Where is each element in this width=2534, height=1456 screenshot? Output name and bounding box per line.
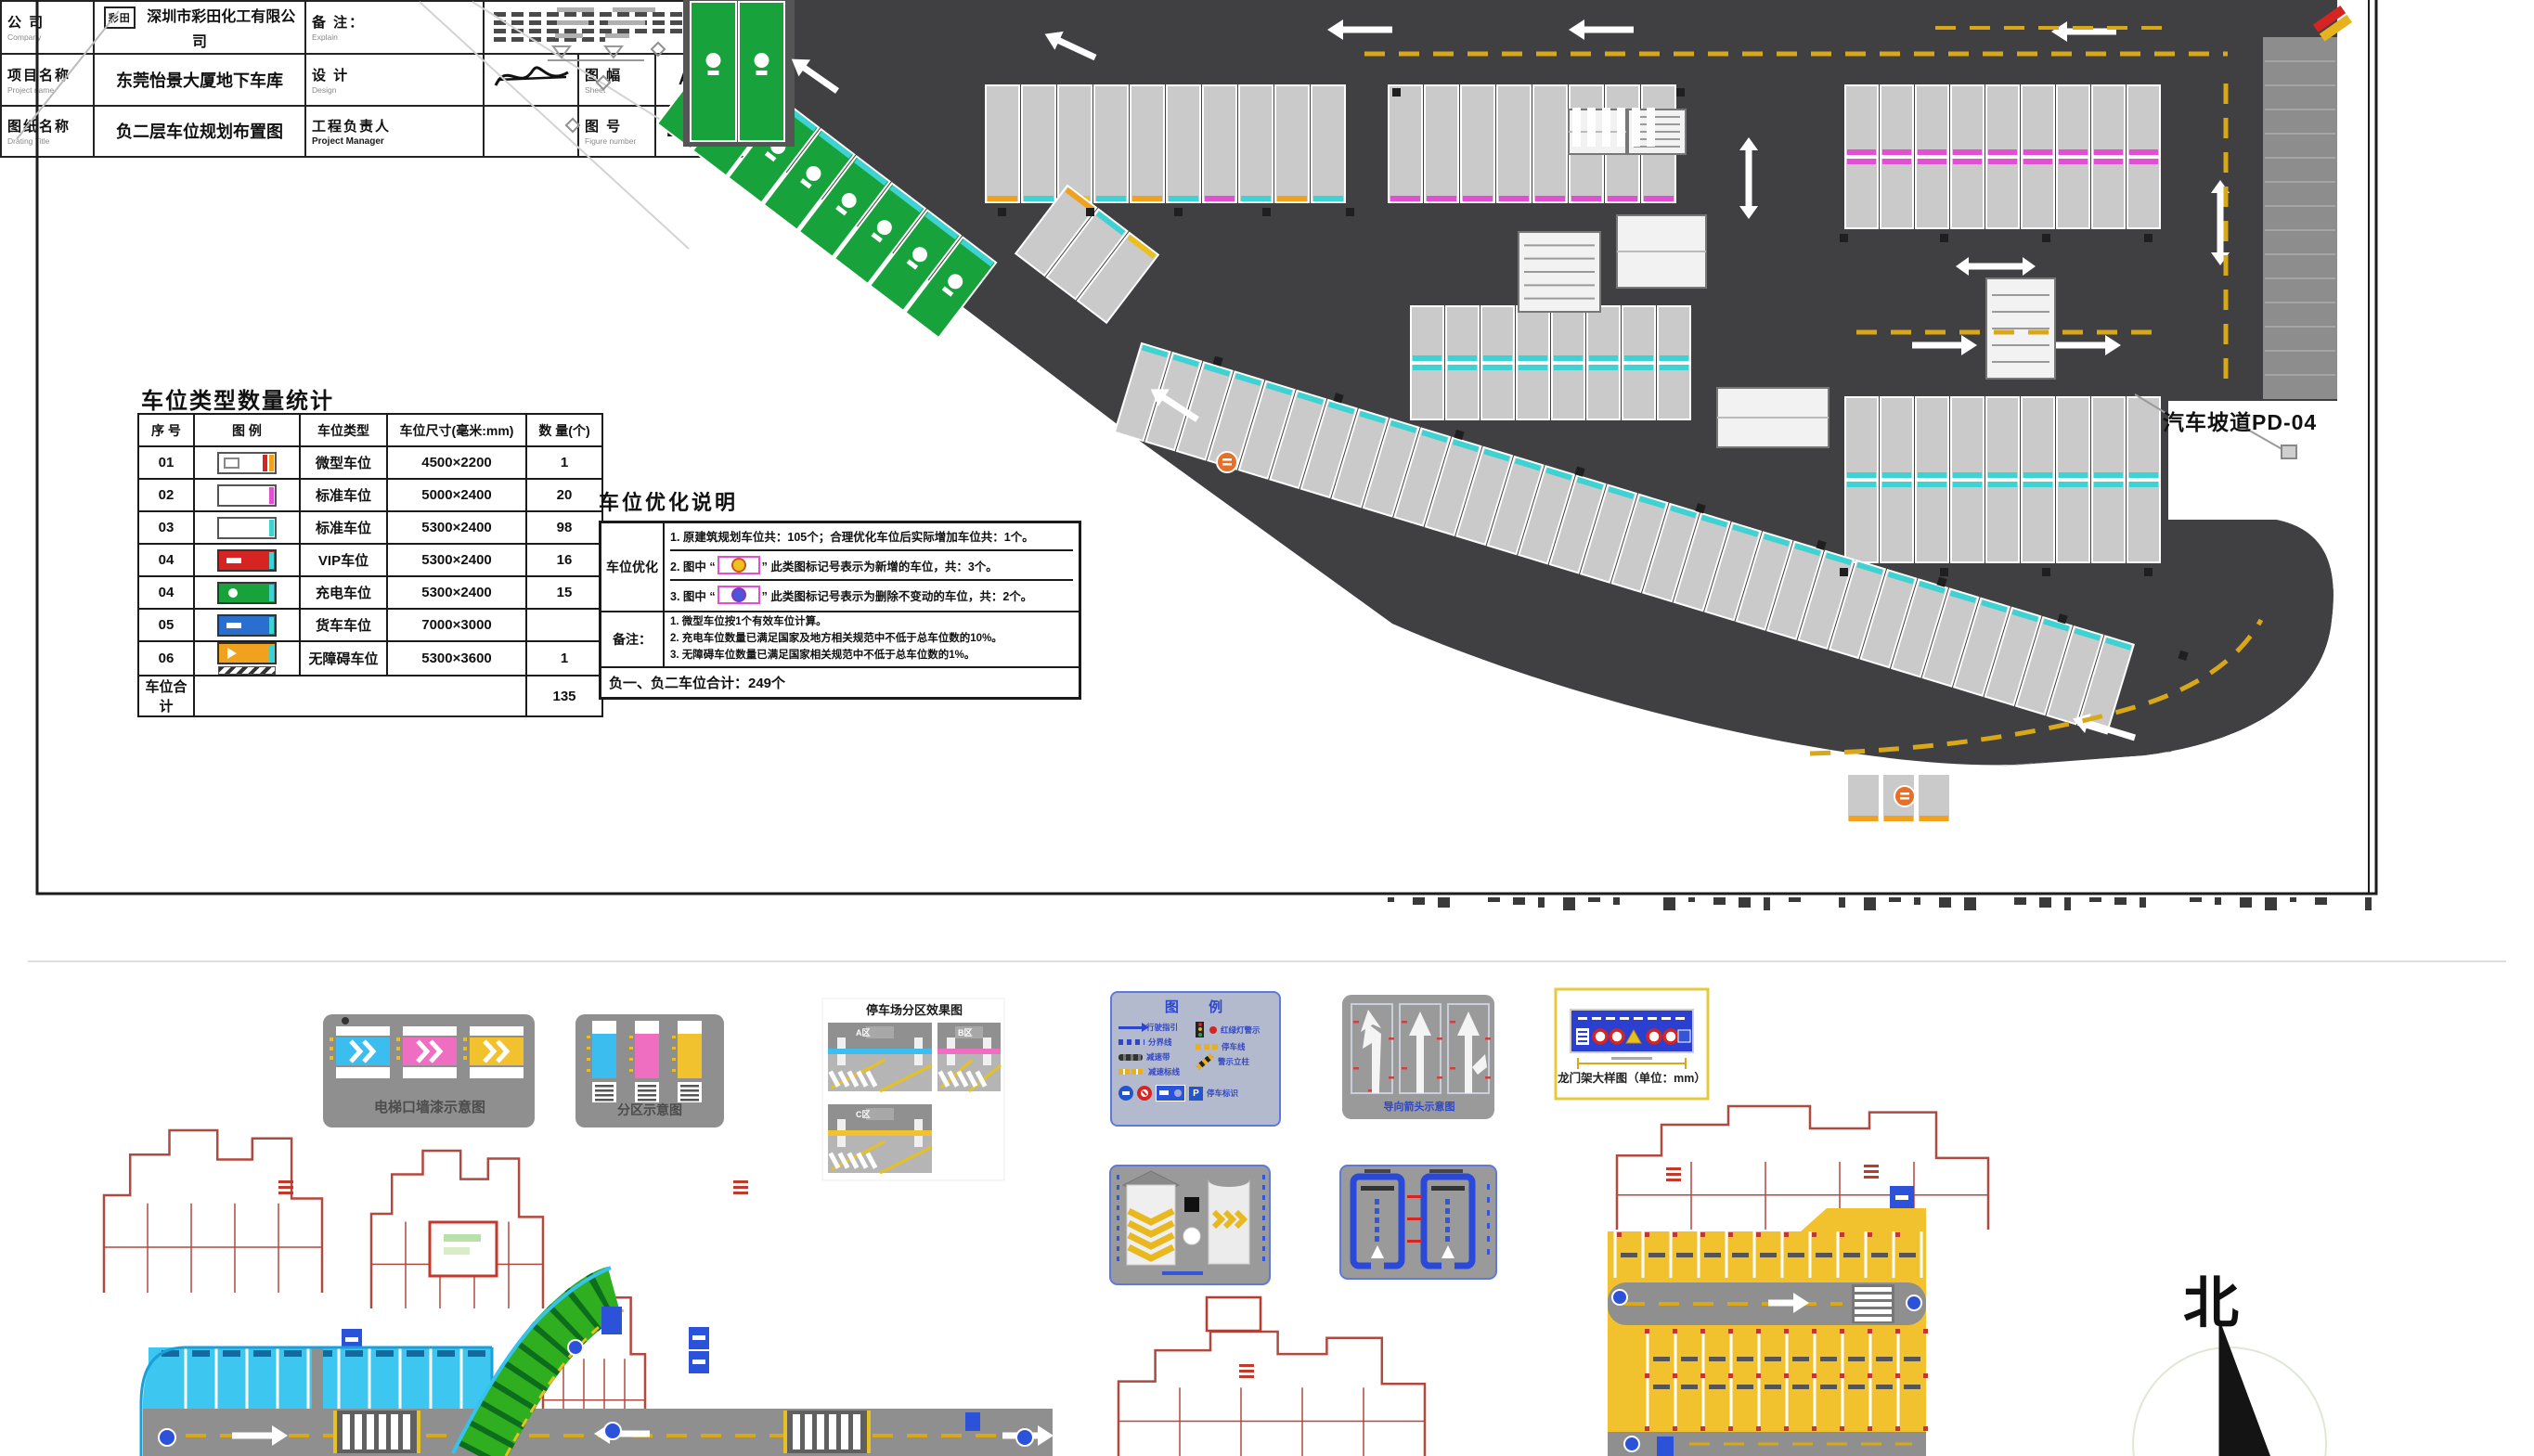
optimization-box: 车位优化说明 车位优化 1. 原建筑规划车位共：105个；合理优化车位后实际增加… xyxy=(599,486,1081,700)
row-no: 01 xyxy=(138,446,194,479)
table-row: 03 标准车位 5300×2400 98 xyxy=(138,511,602,544)
column-header: 图 例 xyxy=(194,414,300,446)
column-header: 序 号 xyxy=(138,414,194,446)
warning-post-icon xyxy=(1196,1053,1213,1069)
ev-parking-top xyxy=(683,0,795,147)
parking-row xyxy=(1845,397,2160,479)
column-header: 数 量(个) xyxy=(526,414,602,446)
zone-a-tag: A区 xyxy=(856,1026,871,1038)
legend-item: 分界线 xyxy=(1118,1037,1196,1048)
stall-qty: 1 xyxy=(526,641,602,676)
no-entry-sign-icon xyxy=(1137,1086,1152,1101)
legend-card: 图 例 行驶指引 分界线 减速带 减速标线 红绿灯警示 xyxy=(1110,991,1281,1127)
stall-qty: 20 xyxy=(526,479,602,511)
optimize-item-1: 1. 原建筑规划车位共：105个；合理优化车位后实际增加车位共：1个。 xyxy=(670,529,1073,546)
zone-diagram-caption: 分区示意图 xyxy=(574,1101,726,1119)
row-no: 03 xyxy=(138,511,194,544)
b1-b2-total-line: 负一、负二车位合计：249个 xyxy=(601,668,1079,697)
parking-plan-drawing xyxy=(0,0,2534,1456)
stall-type: VIP车位 xyxy=(300,544,387,576)
row-no: 04 xyxy=(138,544,194,576)
new-stall-marker-icon xyxy=(718,556,760,574)
parking-row xyxy=(1845,85,2160,156)
stall-type: 微型车位 xyxy=(300,446,387,479)
column-header: 车位类型 xyxy=(300,414,387,446)
legend-item: 减速带 xyxy=(1118,1051,1196,1063)
stall-icon-vip xyxy=(194,544,300,576)
page: { "colors": { "road": "#404042", "stall"… xyxy=(0,0,2534,1456)
note-side-label: 备注： xyxy=(601,612,665,665)
optimize-marker-icon xyxy=(1217,452,1237,472)
stall-type: 标准车位 xyxy=(300,479,387,511)
stall-qty: 98 xyxy=(526,511,602,544)
red-dot-icon xyxy=(1209,1026,1217,1034)
stall-type: 货车车位 xyxy=(300,609,387,641)
legend-item: 警示立柱 xyxy=(1196,1056,1273,1067)
ramp-label: 汽车坡道PD-04 xyxy=(2163,405,2317,436)
stall-qty: 1 xyxy=(526,446,602,479)
building-outline xyxy=(1118,1332,1425,1456)
note-line: 3. 无障碍车位数量已满足国家相关规范中不低于总车位数的1%。 xyxy=(670,648,1073,664)
stall-type: 充电车位 xyxy=(300,576,387,609)
traffic-light-icon xyxy=(1196,1022,1204,1037)
stall-icon-standard xyxy=(194,479,300,511)
car-ramp xyxy=(2263,37,2337,399)
optimization-title: 车位优化说明 xyxy=(599,486,1081,516)
table-row: 05 货车车位 7000×3000 xyxy=(138,609,602,641)
table-row: 02 标准车位 5000×2400 20 xyxy=(138,479,602,511)
legend-item: 红绿灯警示 xyxy=(1196,1022,1273,1037)
parking-row xyxy=(1845,481,2160,562)
table-row: 01 微型车位 4500×2200 1 xyxy=(138,446,602,479)
stall-size: 5300×2400 xyxy=(387,511,526,544)
optimize-item-3: 3. 图中 “” 此类图标记号表示为删除不变动的车位，共：2个。 xyxy=(670,579,1073,605)
note-line: 2. 充电车位数量已满足国家及地方相关规范中不低于总车位数的10%。 xyxy=(670,631,1073,648)
mandatory-sign-icon xyxy=(1118,1086,1133,1101)
table-row: 04 VIP车位 5300×2400 16 xyxy=(138,544,602,576)
stall-icon-micro xyxy=(194,446,300,479)
stats-table: 序 号 图 例 车位类型 车位尺寸(毫米:mm) 数 量(个) 01 微型车位 … xyxy=(137,413,603,717)
legend-item: 停车线 xyxy=(1196,1041,1273,1052)
optimize-side-label: 车位优化 xyxy=(601,523,665,611)
total-label: 车位合计 xyxy=(138,676,194,716)
legend-title: 图 例 xyxy=(1128,997,1273,1016)
building-outline xyxy=(104,1130,322,1293)
optimize-item-2: 2. 图中 “” 此类图标记号表示为新增的车位，共：3个。 xyxy=(670,549,1073,575)
render-card-caption: 停车场分区效果图 xyxy=(822,1000,1006,1018)
north-arrow-icon xyxy=(2220,1321,2270,1456)
total-spacer xyxy=(194,676,526,716)
row-no: 05 xyxy=(138,609,194,641)
stall-qty xyxy=(526,609,602,641)
slow-marking-icon xyxy=(1118,1069,1144,1075)
zone-c-tag: C区 xyxy=(856,1108,871,1120)
elevator-paint-caption: 电梯口墙漆示意图 xyxy=(327,1097,533,1116)
row-no: 02 xyxy=(138,479,194,511)
stats-header-row: 序 号 图 例 车位类型 车位尺寸(毫米:mm) 数 量(个) xyxy=(138,414,602,446)
stall-qty: 16 xyxy=(526,544,602,576)
gantry-caption: 龙门架大样图（单位：mm） xyxy=(1556,1068,1708,1086)
total-qty: 135 xyxy=(526,676,602,716)
stall-type: 标准车位 xyxy=(300,511,387,544)
stall-icon-accessible xyxy=(194,641,300,676)
column-header: 车位尺寸(毫米:mm) xyxy=(387,414,526,446)
stall-qty: 15 xyxy=(526,576,602,609)
stall-size: 4500×2200 xyxy=(387,446,526,479)
c-zone-parking xyxy=(1608,1231,1926,1456)
stall-size: 5300×2400 xyxy=(387,544,526,576)
table-row: 06 无障碍车位 5300×3600 1 xyxy=(138,641,602,676)
speed-bump-icon xyxy=(1118,1054,1143,1061)
table-row: 04 充电车位 5300×2400 15 xyxy=(138,576,602,609)
parking-row xyxy=(1845,158,2160,228)
stall-icon-truck xyxy=(194,609,300,641)
guide-arrow-caption: 导向箭头示意图 xyxy=(1342,1099,1496,1114)
zone-b-tag: B区 xyxy=(958,1026,973,1038)
legend-item: 减速标线 xyxy=(1118,1066,1196,1077)
optimize-marker-icon xyxy=(1894,786,1915,806)
north-label: 北 xyxy=(2183,1258,2239,1339)
boundary-dash-icon xyxy=(1118,1039,1144,1045)
stall-size: 5300×3600 xyxy=(387,641,526,676)
removed-stall-marker-icon xyxy=(718,586,760,604)
stats-table-title: 车位类型数量统计 xyxy=(141,382,334,415)
stats-total-row: 车位合计 135 xyxy=(138,676,602,716)
stall-size: 5300×2400 xyxy=(387,576,526,609)
row-no: 06 xyxy=(138,641,194,676)
stall-icon-ev xyxy=(194,576,300,609)
stall-type: 无障碍车位 xyxy=(300,641,387,676)
row-no: 04 xyxy=(138,576,194,609)
legend-item: 行驶指引 xyxy=(1118,1022,1196,1033)
drive-arrow-icon xyxy=(1118,1026,1143,1029)
detail-box xyxy=(1207,1297,1261,1331)
parking-sign-icon: P xyxy=(1189,1087,1203,1101)
note-line: 1. 微型车位按1个有效车位计算。 xyxy=(670,614,1073,631)
legend-signs-row: P 停车标识 xyxy=(1118,1085,1273,1102)
stall-size: 5000×2400 xyxy=(387,479,526,511)
parking-line-icon xyxy=(1196,1044,1218,1050)
blue-sign-pair-icon xyxy=(689,1327,709,1373)
stall-size: 7000×3000 xyxy=(387,609,526,641)
speed-limit-sign-icon xyxy=(1156,1085,1185,1102)
stall-icon-standard2 xyxy=(194,511,300,544)
